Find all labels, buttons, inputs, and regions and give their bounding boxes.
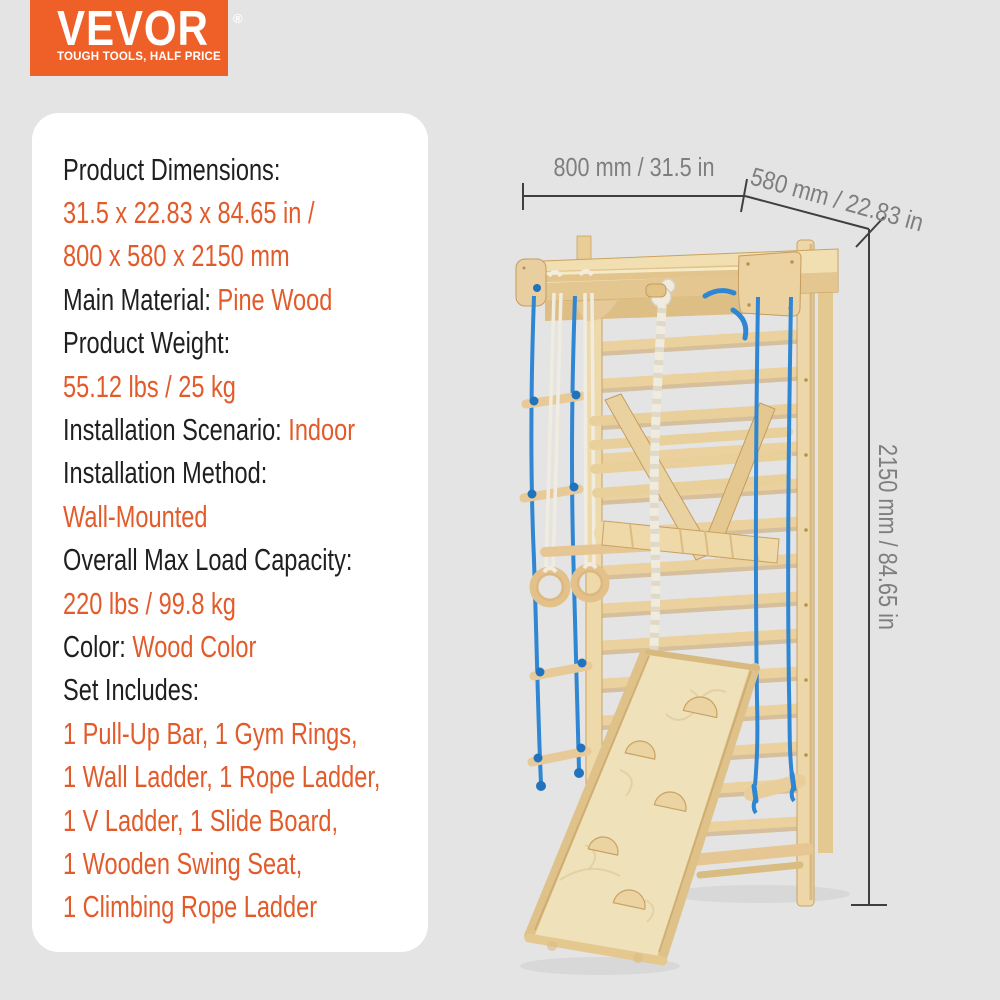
ring-straps — [546, 293, 594, 571]
gym-ring — [534, 571, 566, 603]
product-illustration: 800 mm / 31.5 in 580 mm / 22.83 in 2150 … — [0, 0, 1000, 1000]
width-dimension-label: 800 mm / 31.5 in — [554, 154, 715, 182]
floor-shadow — [670, 885, 850, 903]
rope-ladder — [524, 296, 588, 791]
rope-bead — [646, 284, 666, 297]
bracket-left — [516, 259, 546, 306]
slide-surface — [528, 652, 758, 962]
swing-rope — [755, 297, 758, 786]
height-dimension-label: 2150 mm / 84.65 in — [873, 444, 901, 630]
rope-ladder-rope — [531, 296, 541, 783]
slide-board — [528, 652, 758, 963]
bottom-support-bar — [693, 849, 808, 860]
depth-dimension-label: 580 mm / 22.83 in — [747, 163, 926, 238]
rope-ladder-rope — [572, 296, 579, 770]
bottom-support-bar — [700, 865, 800, 875]
wall-rail-back — [818, 253, 833, 853]
product-infographic: VEVOR ® TOUGH TOOLS, HALF PRICE Product … — [0, 0, 1000, 1000]
